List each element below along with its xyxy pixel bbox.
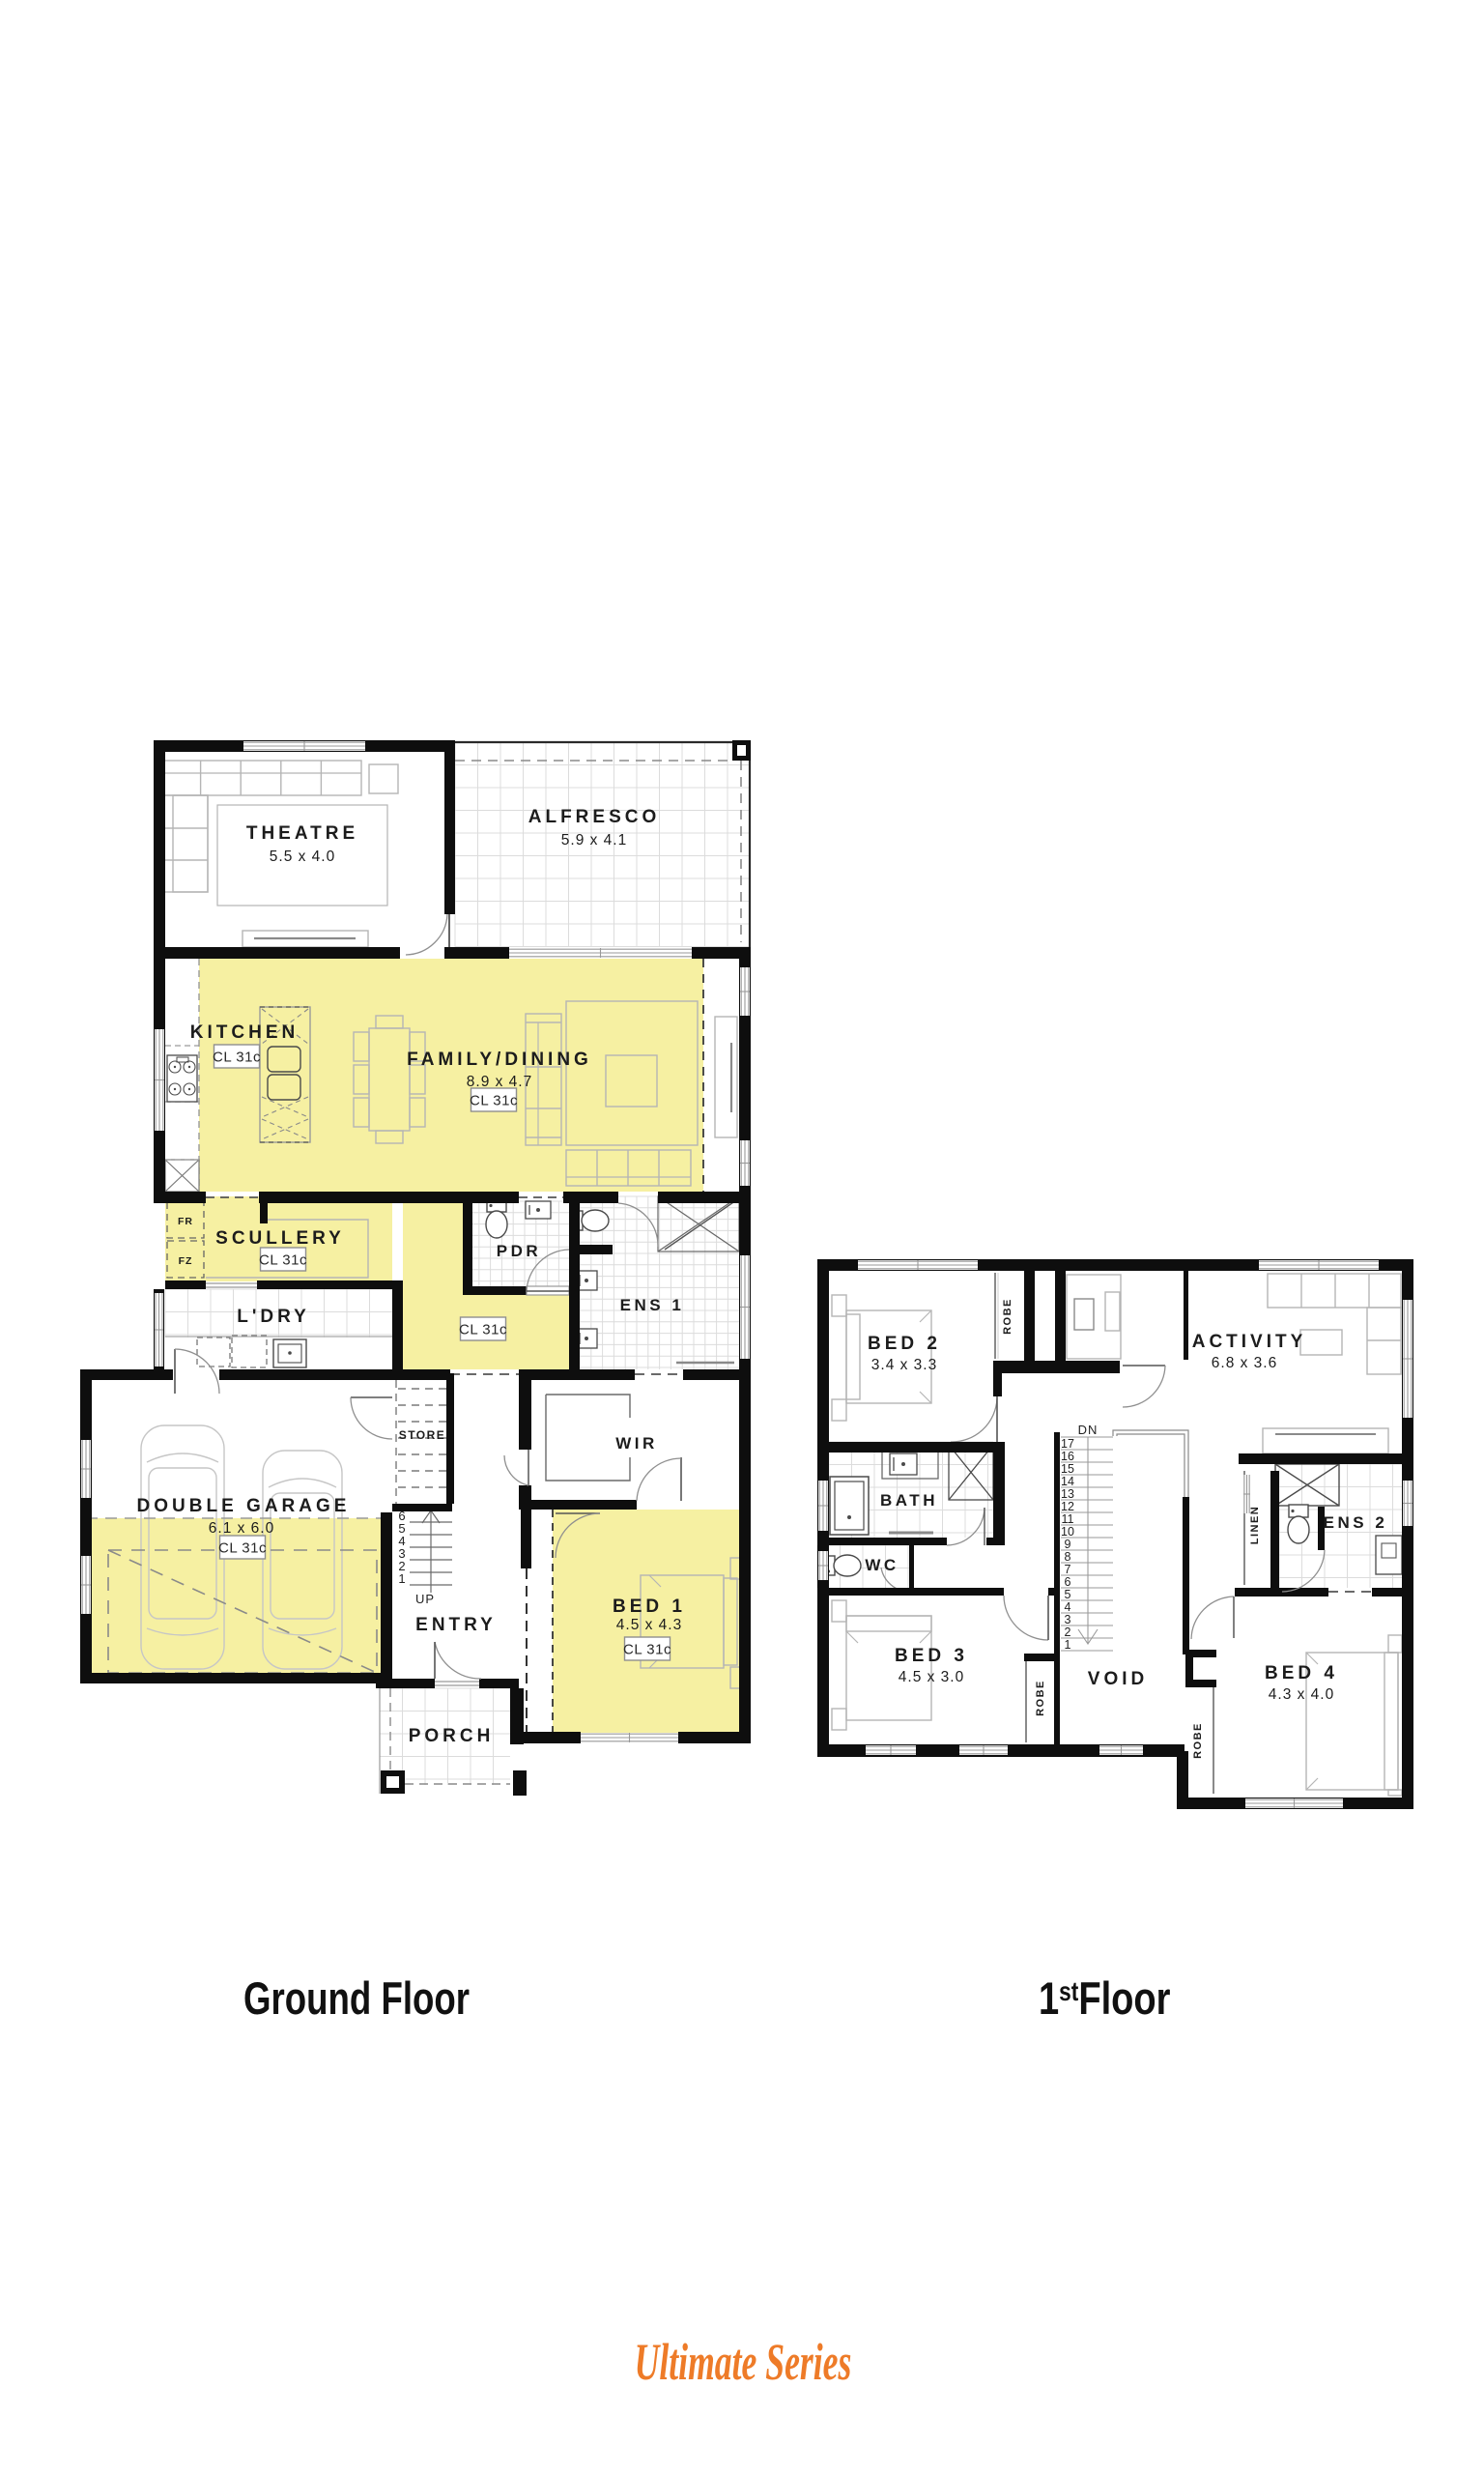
svg-text:17: 17 — [1061, 1437, 1074, 1451]
svg-text:CL 31c: CL 31c — [623, 1642, 671, 1658]
svg-text:5: 5 — [1065, 1588, 1071, 1601]
svg-text:3: 3 — [1065, 1613, 1071, 1626]
svg-text:7: 7 — [1065, 1563, 1071, 1576]
svg-text:ALFRESCO: ALFRESCO — [528, 807, 661, 827]
svg-text:4.5 x 3.0: 4.5 x 3.0 — [899, 1669, 964, 1685]
svg-text:UP: UP — [415, 1592, 435, 1606]
svg-text:DOUBLE GARAGE: DOUBLE GARAGE — [137, 1496, 351, 1516]
svg-text:1: 1 — [1065, 1638, 1071, 1652]
svg-text:8: 8 — [1065, 1550, 1071, 1564]
svg-text:Ground Floor: Ground Floor — [243, 1973, 470, 2024]
svg-text:BED 2: BED 2 — [868, 1334, 941, 1354]
svg-text:BED 3: BED 3 — [895, 1646, 968, 1666]
svg-text:14: 14 — [1061, 1475, 1074, 1488]
svg-text:6.1 x 6.0: 6.1 x 6.0 — [209, 1520, 274, 1537]
svg-text:ENS 1: ENS 1 — [620, 1296, 685, 1314]
svg-text:ENS 2: ENS 2 — [1324, 1513, 1388, 1532]
svg-text:Ultimate Series: Ultimate Series — [635, 2333, 852, 2391]
svg-text:VOID: VOID — [1088, 1669, 1148, 1689]
svg-text:9: 9 — [1065, 1538, 1071, 1551]
svg-text:FZ: FZ — [179, 1255, 193, 1267]
svg-text:4.5 x 4.3: 4.5 x 4.3 — [616, 1617, 682, 1633]
svg-text:12: 12 — [1061, 1500, 1074, 1513]
svg-text:CL 31c: CL 31c — [470, 1093, 518, 1109]
svg-text:2: 2 — [1065, 1625, 1071, 1639]
svg-text:4: 4 — [1065, 1600, 1071, 1614]
svg-text:PORCH: PORCH — [409, 1726, 495, 1746]
svg-text:6.8 x 3.6: 6.8 x 3.6 — [1212, 1355, 1277, 1371]
svg-text:CL 31c: CL 31c — [259, 1252, 307, 1269]
svg-text:4.3 x 4.0: 4.3 x 4.0 — [1269, 1686, 1334, 1703]
svg-text:SCULLERY: SCULLERY — [215, 1228, 345, 1249]
svg-text:CL 31c: CL 31c — [218, 1540, 267, 1557]
svg-text:6: 6 — [1065, 1575, 1071, 1589]
svg-text:ENTRY: ENTRY — [415, 1615, 497, 1635]
svg-text:BATH: BATH — [880, 1491, 938, 1510]
svg-text:CL 31c: CL 31c — [459, 1322, 507, 1338]
svg-text:1stFloor: 1stFloor — [1039, 1973, 1170, 2025]
svg-text:PDR: PDR — [497, 1242, 541, 1260]
svg-text:10: 10 — [1061, 1525, 1074, 1539]
svg-text:3.4 x 3.3: 3.4 x 3.3 — [871, 1357, 937, 1373]
svg-text:5.5 x 4.0: 5.5 x 4.0 — [270, 849, 335, 865]
svg-text:WC: WC — [865, 1556, 899, 1574]
svg-text:LINEN: LINEN — [1249, 1506, 1261, 1545]
svg-text:11: 11 — [1062, 1512, 1074, 1526]
svg-text:ACTIVITY: ACTIVITY — [1192, 1332, 1307, 1352]
svg-text:CL 31c: CL 31c — [213, 1050, 261, 1066]
svg-text:BED 1: BED 1 — [613, 1597, 686, 1617]
svg-text:THEATRE: THEATRE — [246, 823, 358, 844]
svg-text:BED 4: BED 4 — [1265, 1663, 1338, 1683]
svg-text:16: 16 — [1061, 1450, 1074, 1463]
svg-text:ROBE: ROBE — [1192, 1722, 1204, 1759]
svg-text:L'DRY: L'DRY — [237, 1307, 310, 1327]
svg-text:DN: DN — [1078, 1423, 1099, 1437]
svg-text:13: 13 — [1061, 1487, 1074, 1501]
svg-text:KITCHEN: KITCHEN — [190, 1022, 299, 1043]
svg-text:15: 15 — [1061, 1462, 1074, 1476]
svg-text:ROBE: ROBE — [1035, 1680, 1046, 1716]
svg-text:5.9 x 4.1: 5.9 x 4.1 — [561, 832, 627, 849]
svg-text:FAMILY/DINING: FAMILY/DINING — [407, 1050, 592, 1070]
svg-text:FR: FR — [178, 1216, 193, 1227]
svg-text:WIR: WIR — [615, 1434, 658, 1453]
svg-text:ROBE: ROBE — [1002, 1298, 1013, 1335]
svg-text:STORE: STORE — [399, 1428, 446, 1442]
svg-text:1: 1 — [398, 1571, 405, 1586]
